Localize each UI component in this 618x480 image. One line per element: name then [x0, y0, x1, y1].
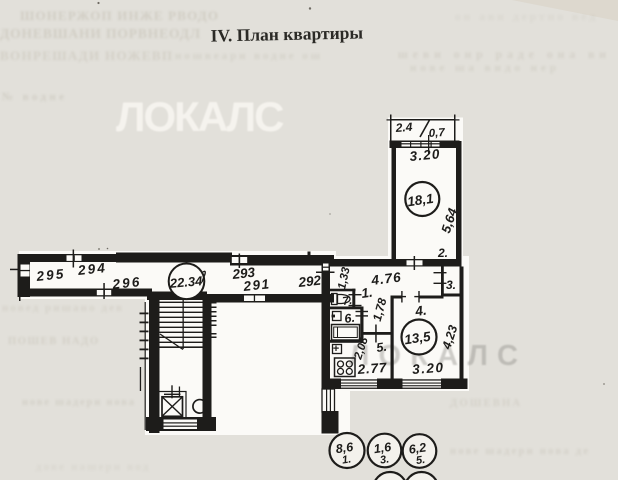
- svg-text:1.: 1.: [360, 285, 373, 301]
- svg-text:он ави дертно вед: он ави дертно вед: [455, 11, 595, 23]
- svg-text:1.: 1.: [341, 453, 352, 466]
- svg-text:IV. План квартиры: IV. План квартиры: [210, 22, 363, 45]
- svg-text:3.20: 3.20: [412, 360, 445, 377]
- svg-text:ВОНРЕШАДИ НОЖЕВП: ВОНРЕШАДИ НОЖЕВП: [0, 48, 172, 63]
- svg-text:291: 291: [242, 276, 271, 294]
- svg-text:22.34: 22.34: [168, 273, 203, 291]
- svg-text:0,7: 0,7: [428, 127, 445, 140]
- svg-text:ДОНЕВШАНИ ПОРВНЕОДЛ: ДОНЕВШАНИ ПОРВНЕОДЛ: [0, 26, 200, 41]
- svg-text:2.: 2.: [437, 246, 448, 260]
- svg-text:дове нашери вод: дове нашери вод: [36, 462, 149, 473]
- svg-text:новед ришано дев: новед ришано дев: [2, 302, 122, 314]
- svg-text:ШОНЕРЖОП ИНЖЕ РВОДО: ШОНЕРЖОП ИНЖЕ РВОДО: [20, 8, 218, 23]
- svg-text:2.77: 2.77: [356, 360, 388, 377]
- svg-text:4.: 4.: [413, 303, 427, 320]
- svg-text:3.20: 3.20: [409, 146, 441, 164]
- svg-text:5.: 5.: [415, 454, 426, 467]
- svg-text:296: 296: [111, 274, 143, 292]
- svg-text:5.: 5.: [375, 340, 387, 355]
- svg-text:3.: 3.: [379, 453, 390, 466]
- svg-text:2.4: 2.4: [394, 120, 413, 135]
- svg-text:3.: 3.: [446, 278, 456, 292]
- svg-text:295: 295: [35, 266, 67, 284]
- svg-text:7.: 7.: [342, 295, 353, 308]
- svg-text:№ водне: № водне: [2, 91, 64, 103]
- svg-text:ДОШЕВНА: ДОШЕВНА: [450, 398, 520, 409]
- svg-text:ПОШЕВ НАДО: ПОШЕВ НАДО: [8, 336, 98, 347]
- svg-text:6.: 6.: [343, 311, 355, 326]
- svg-text:294: 294: [76, 260, 108, 278]
- svg-text:ЛОКАЛС: ЛОКАЛС: [116, 93, 286, 140]
- svg-text:292: 292: [297, 273, 322, 290]
- svg-text:нове шадери нова де: нове шадери нова де: [450, 446, 588, 457]
- svg-text:ношвеари водне ош: ношвеари водне ош: [175, 50, 320, 62]
